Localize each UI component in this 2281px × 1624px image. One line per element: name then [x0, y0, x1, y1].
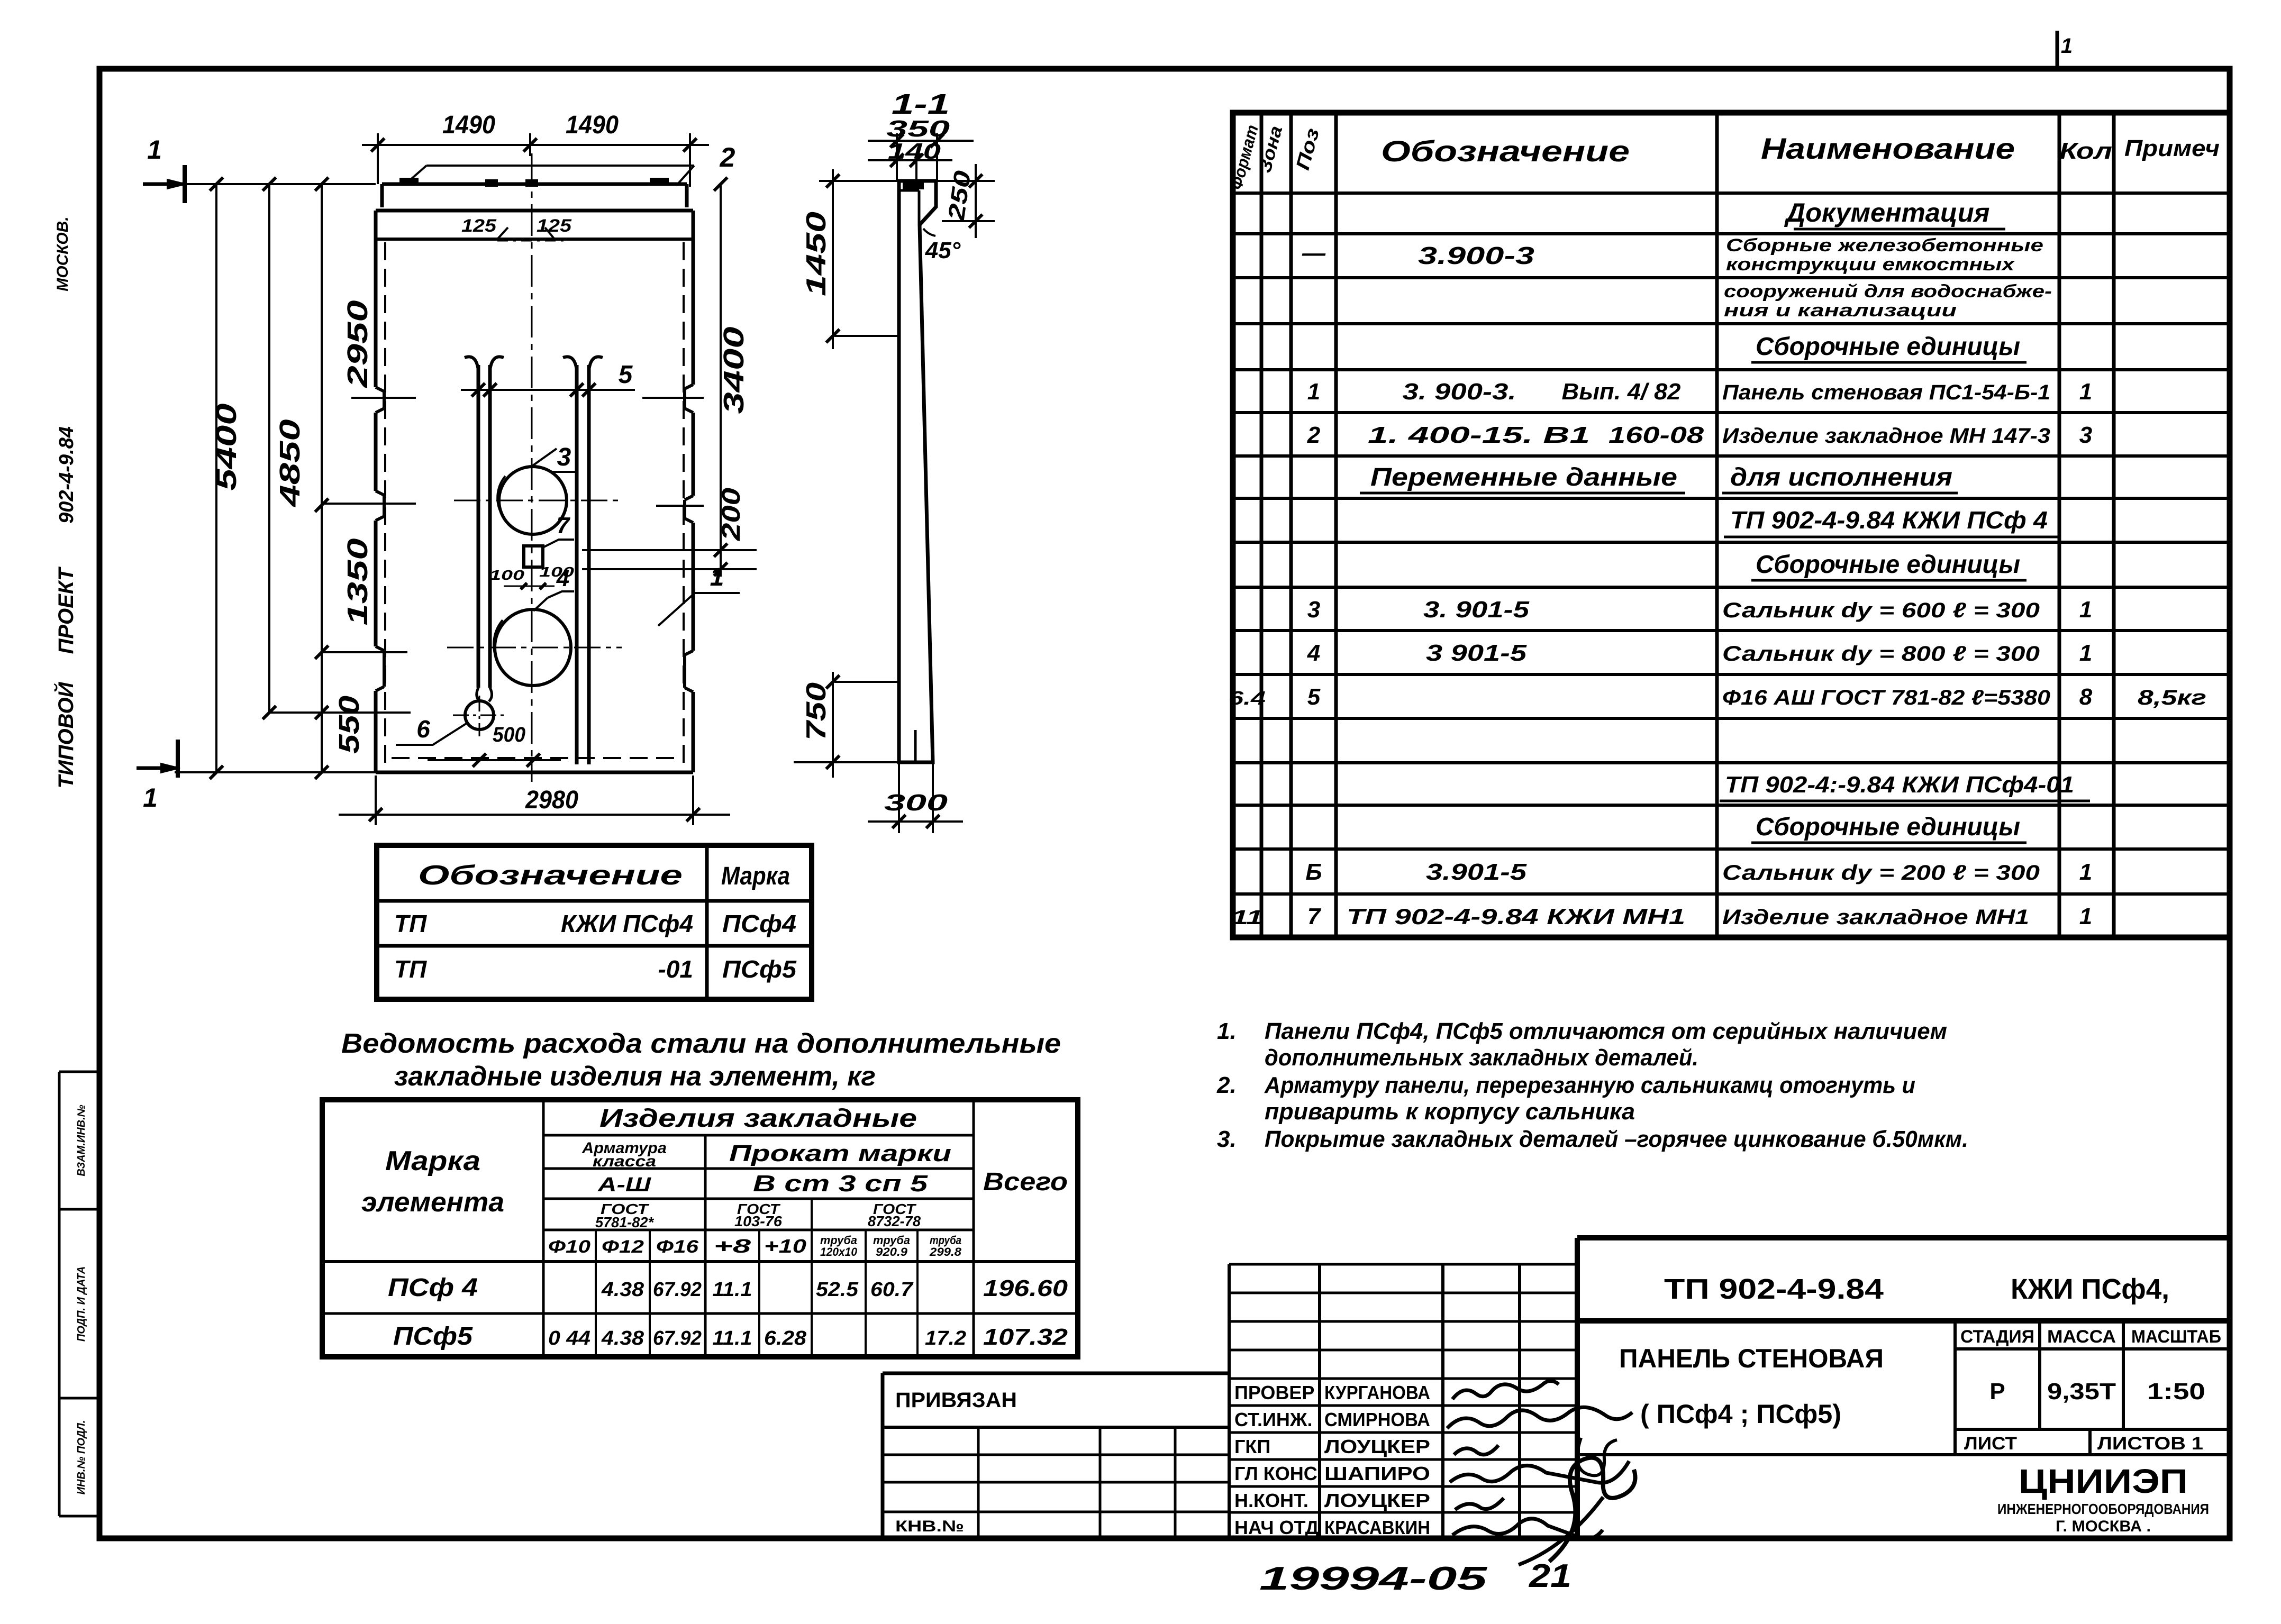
svg-text:Сборочные единицы: Сборочные единицы: [1756, 813, 2020, 841]
svg-text:7: 7: [1307, 904, 1322, 929]
svg-text:закладные изделия на элем: закладные изделия на элемент, кг: [394, 1061, 876, 1092]
svg-text:299.8: 299.8: [929, 1245, 962, 1258]
svg-text:Сборочные единицы: Сборочные единицы: [1756, 551, 2020, 579]
svg-text:ПРОВЕР: ПРОВЕР: [1234, 1382, 1314, 1403]
svg-text:А-Ш: А-Ш: [597, 1174, 651, 1196]
svg-text:Примеч: Примеч: [2124, 135, 2220, 161]
svg-text:ТП: ТП: [394, 910, 427, 937]
svg-text:ПАНЕЛЬ СТЕНОВАЯ: ПАНЕЛЬ СТЕНОВАЯ: [1619, 1344, 1884, 1373]
svg-text:ПОДП. И ДАТА: ПОДП. И ДАТА: [76, 1266, 87, 1342]
svg-text:8,5кг: 8,5кг: [2138, 686, 2206, 709]
svg-text:19994-05: 19994-05: [1259, 1561, 1488, 1597]
svg-text:Изделия закладные: Изделия закладные: [599, 1105, 917, 1133]
svg-text:3. 900-3.: 3. 900-3.: [1403, 379, 1516, 405]
svg-text:1: 1: [2061, 34, 2073, 58]
svg-text:ШАПИРО: ШАПИРО: [1324, 1463, 1430, 1484]
svg-text:3: 3: [2079, 422, 2092, 448]
svg-text:550: 550: [333, 696, 365, 754]
svg-text:1. 400-15. В1: 1. 400-15. В1: [1368, 422, 1590, 448]
svg-text:1490: 1490: [442, 111, 495, 139]
svg-text:КЖИ ПСф4,: КЖИ ПСф4,: [2011, 1273, 2169, 1305]
svg-text:ПРОЕКТ: ПРОЕКТ: [54, 566, 78, 654]
svg-text:ЛИСТОВ 1: ЛИСТОВ 1: [2097, 1434, 2203, 1454]
svg-text:200: 200: [717, 488, 746, 542]
svg-text:ЦНИИЭП: ЦНИИЭП: [2019, 1462, 2188, 1500]
svg-text:приварить к корпусу сальник: приварить к корпусу сальника: [1265, 1099, 1635, 1125]
svg-text:2.: 2.: [1216, 1072, 1237, 1098]
svg-text:ИНВ.№ ПОДЛ.: ИНВ.№ ПОДЛ.: [76, 1420, 87, 1495]
svg-text:ПСф 4: ПСф 4: [388, 1274, 478, 1302]
svg-text:ТП 902-4-9.84: ТП 902-4-9.84: [1664, 1273, 1884, 1305]
svg-text:ЛИСТ: ЛИСТ: [1964, 1434, 2017, 1454]
svg-text:Панели ПСф4, ПСф5 отличаютс: Панели ПСф4, ПСф5 отличаются от серийных…: [1265, 1018, 1947, 1044]
svg-text:ТП 902-4-9.84 КЖИ МН1: ТП 902-4-9.84 КЖИ МН1: [1347, 904, 1685, 929]
svg-text:1: 1: [2079, 904, 2092, 929]
svg-text:Кол: Кол: [2059, 138, 2112, 164]
svg-text:Прокат марки: Прокат марки: [729, 1141, 951, 1166]
svg-text:сооружений для водоснабже-: сооружений для водоснабже-: [1724, 281, 2052, 302]
svg-text:1: 1: [2079, 379, 2092, 405]
svg-text:0 44: 0 44: [548, 1327, 590, 1349]
svg-text:ВЗАМ.ИНВ.№: ВЗАМ.ИНВ.№: [76, 1105, 87, 1176]
svg-text:МАСШТАБ: МАСШТАБ: [2131, 1327, 2221, 1347]
svg-text:67.92: 67.92: [653, 1327, 702, 1349]
svg-text:ТИПОВОЙ: ТИПОВОЙ: [53, 681, 78, 788]
svg-text:67.92: 67.92: [653, 1279, 702, 1301]
svg-text:4: 4: [556, 565, 569, 591]
svg-text:Переменные данные: Переменные данные: [1370, 463, 1677, 491]
svg-text:1: 1: [143, 783, 158, 813]
svg-text:Покрытие закладных деталей: Покрытие закладных деталей –горячее цинк…: [1265, 1126, 1968, 1152]
svg-text:класса: класса: [593, 1153, 656, 1170]
svg-text:1: 1: [2079, 859, 2092, 885]
svg-text:920.9: 920.9: [876, 1245, 908, 1258]
svg-text:2950: 2950: [342, 300, 374, 388]
svg-text:3. 901-5: 3. 901-5: [1423, 597, 1530, 623]
svg-text:Всего: Всего: [983, 1168, 1068, 1196]
svg-text:1:50: 1:50: [2147, 1379, 2205, 1404]
svg-text:Изделие закладное МН1: Изделие закладное МН1: [1722, 906, 2029, 929]
svg-text:Поз: Поз: [1292, 126, 1323, 172]
svg-text:( ПСф4 ; ПСф5): ( ПСф4 ; ПСф5): [1640, 1399, 1841, 1429]
svg-text:1: 1: [710, 563, 724, 591]
svg-text:-01: -01: [658, 955, 693, 983]
svg-text:Б: Б: [1305, 859, 1322, 885]
svg-text:Изделие закладное МН 147-3: Изделие закладное МН 147-3: [1722, 424, 2050, 448]
svg-text:Вып. 4/ 82: Вып. 4/ 82: [1562, 379, 1682, 405]
svg-text:4.38: 4.38: [601, 1279, 644, 1301]
svg-text:3: 3: [1307, 597, 1320, 623]
svg-text:МАССА: МАССА: [2047, 1327, 2116, 1347]
svg-text:6: 6: [416, 715, 430, 743]
svg-text:Обозначение: Обозначение: [418, 860, 683, 891]
svg-text:Панель стеновая ПС1-54-Б-1: Панель стеновая ПС1-54-Б-1: [1722, 381, 2050, 404]
svg-text:Ф16 АШ ГОСТ 781-82 ℓ=5380: Ф16 АШ ГОСТ 781-82 ℓ=5380: [1722, 686, 2050, 709]
svg-text:11: 11: [1231, 907, 1263, 929]
svg-text:для исполнения: для исполнения: [1730, 463, 1952, 491]
svg-text:902-4-9.84: 902-4-9.84: [56, 426, 78, 524]
svg-text:Сальник dy = 200 ℓ = 300: Сальник dy = 200 ℓ = 300: [1722, 861, 2040, 884]
svg-text:2980: 2980: [525, 786, 578, 814]
svg-text:6.4: 6.4: [1229, 687, 1266, 709]
svg-text:1-1: 1-1: [892, 88, 950, 120]
svg-text:ПСф5: ПСф5: [722, 955, 797, 983]
svg-text:1.: 1.: [1217, 1018, 1237, 1044]
svg-text:Ф12: Ф12: [602, 1237, 644, 1257]
svg-text:+8: +8: [714, 1235, 751, 1257]
svg-text:4: 4: [1307, 640, 1320, 666]
svg-text:Марка: Марка: [721, 862, 790, 890]
svg-text:ТП: ТП: [394, 955, 427, 983]
svg-text:21: 21: [1529, 1558, 1571, 1594]
svg-text:120х10: 120х10: [820, 1245, 858, 1258]
svg-text:конструкции емкостных: конструкции емкостных: [1726, 254, 2016, 275]
svg-text:Сальник dy = 800 ℓ = 300: Сальник dy = 800 ℓ = 300: [1722, 642, 2040, 665]
svg-text:52.5: 52.5: [816, 1279, 859, 1301]
svg-text:3400: 3400: [718, 327, 750, 414]
svg-text:Н.КОНТ.: Н.КОНТ.: [1234, 1490, 1308, 1511]
svg-text:7: 7: [557, 513, 571, 539]
svg-text:107.32: 107.32: [983, 1324, 1068, 1350]
svg-text:1350: 1350: [342, 539, 374, 626]
svg-text:КНВ.№: КНВ.№: [895, 1518, 964, 1535]
svg-text:3 901-5: 3 901-5: [1426, 640, 1527, 666]
svg-text:Наименование: Наименование: [1761, 132, 2015, 165]
svg-text:5: 5: [1307, 684, 1321, 710]
svg-text:2: 2: [1307, 422, 1321, 448]
svg-text:5781-82*: 5781-82*: [595, 1214, 654, 1230]
svg-text:1: 1: [147, 135, 162, 165]
svg-text:ния и канализации: ния и канализации: [1724, 300, 1957, 321]
svg-text:45°: 45°: [925, 238, 961, 263]
svg-text:Р: Р: [1989, 1379, 2005, 1404]
svg-text:1490: 1490: [566, 111, 619, 139]
svg-text:3.: 3.: [1217, 1126, 1237, 1152]
svg-text:ИНЖЕНЕРНОГООБОРЯДОВАНИЯ: ИНЖЕНЕРНОГООБОРЯДОВАНИЯ: [1997, 1501, 2209, 1517]
svg-text:125: 125: [461, 216, 497, 236]
svg-text:100: 100: [489, 567, 525, 583]
svg-text:Г. МОСКВА .: Г. МОСКВА .: [2056, 1518, 2151, 1535]
svg-text:1: 1: [2079, 640, 2092, 666]
svg-text:8732-78: 8732-78: [868, 1213, 921, 1229]
svg-text:103-76: 103-76: [734, 1213, 782, 1229]
svg-text:МОСКОВ.: МОСКОВ.: [54, 216, 71, 291]
svg-text:60.7: 60.7: [870, 1279, 914, 1301]
svg-text:КЖИ ПСф4: КЖИ ПСф4: [561, 910, 693, 937]
svg-text:ЛОУЦКЕР: ЛОУЦКЕР: [1324, 1436, 1430, 1457]
svg-text:5: 5: [619, 361, 633, 389]
svg-text:300: 300: [884, 790, 948, 816]
svg-text:1450: 1450: [801, 212, 832, 296]
svg-text:ГКП: ГКП: [1234, 1436, 1270, 1457]
svg-text:В ст 3 сп 5: В ст 3 сп 5: [753, 1171, 928, 1197]
svg-text:8: 8: [2079, 684, 2093, 710]
svg-text:125: 125: [537, 216, 572, 236]
svg-text:160-08: 160-08: [1608, 422, 1704, 448]
svg-text:11.1: 11.1: [713, 1279, 752, 1301]
svg-text:дополнительных закладных дет: дополнительных закладных деталей.: [1265, 1045, 1698, 1071]
svg-text:Арматуру панели, перерезанну: Арматуру панели, перерезанную сальникамц…: [1264, 1072, 1915, 1098]
svg-text:3: 3: [557, 443, 571, 471]
svg-text:—: —: [1302, 240, 1326, 266]
svg-text:КУРГАНОВА: КУРГАНОВА: [1324, 1382, 1430, 1403]
svg-text:250: 250: [943, 169, 976, 223]
svg-text:9,35Т: 9,35Т: [2047, 1379, 2116, 1404]
svg-text:Сборочные единицы: Сборочные единицы: [1756, 333, 2020, 361]
svg-text:17.2: 17.2: [925, 1327, 966, 1349]
svg-text:500: 500: [493, 723, 525, 746]
svg-text:Сборные железобетонные: Сборные железобетонные: [1726, 235, 2043, 256]
svg-text:Документация: Документация: [1784, 198, 1989, 227]
svg-text:ЛОУЦКЕР: ЛОУЦКЕР: [1324, 1490, 1430, 1511]
svg-text:3.901-5: 3.901-5: [1426, 859, 1527, 885]
svg-text:+10: +10: [764, 1235, 806, 1257]
svg-text:КРАСАВКИН: КРАСАВКИН: [1324, 1517, 1430, 1538]
svg-text:Ф10: Ф10: [548, 1237, 590, 1257]
svg-text:196.60: 196.60: [983, 1275, 1068, 1301]
svg-text:4.38: 4.38: [601, 1327, 644, 1349]
svg-text:750: 750: [801, 682, 832, 741]
svg-text:Ф16: Ф16: [656, 1237, 699, 1257]
svg-text:Ведомость расхода стали на: Ведомость расхода стали на дополнительны…: [341, 1028, 1061, 1059]
svg-text:6.28: 6.28: [764, 1327, 807, 1349]
svg-text:ТП 902-4-9.84 КЖИ ПСф 4: ТП 902-4-9.84 КЖИ ПСф 4: [1730, 506, 2048, 534]
svg-text:ПРИВЯЗАН: ПРИВЯЗАН: [895, 1389, 1017, 1412]
svg-text:3.900-3: 3.900-3: [1418, 242, 1535, 269]
svg-text:Марка: Марка: [385, 1146, 480, 1176]
svg-text:5400: 5400: [211, 404, 242, 491]
svg-text:2: 2: [720, 142, 735, 173]
svg-text:СТАДИЯ: СТАДИЯ: [1960, 1327, 2034, 1347]
svg-text:ТП 902-4:-9.84 КЖИ ПСф4-01: ТП 902-4:-9.84 КЖИ ПСф4-01: [1725, 772, 2074, 798]
svg-text:элемента: элемента: [361, 1187, 504, 1218]
svg-text:ПСф4: ПСф4: [722, 910, 796, 937]
svg-text:1: 1: [1307, 379, 1320, 405]
svg-text:Обозначение: Обозначение: [1381, 134, 1630, 168]
svg-text:СМИРНОВА: СМИРНОВА: [1324, 1409, 1430, 1430]
svg-text:СТ.ИНЖ.: СТ.ИНЖ.: [1234, 1409, 1312, 1430]
svg-text:ПСф5: ПСф5: [393, 1322, 473, 1351]
svg-text:1: 1: [2079, 597, 2092, 623]
svg-text:НАЧ ОТД: НАЧ ОТД: [1234, 1517, 1319, 1538]
svg-text:Сальник dy = 600 ℓ = 300: Сальник dy = 600 ℓ = 300: [1722, 599, 2040, 622]
svg-text:11.1: 11.1: [713, 1327, 752, 1349]
svg-text:ГЛ КОНС: ГЛ КОНС: [1234, 1463, 1317, 1484]
svg-text:4850: 4850: [274, 419, 306, 507]
